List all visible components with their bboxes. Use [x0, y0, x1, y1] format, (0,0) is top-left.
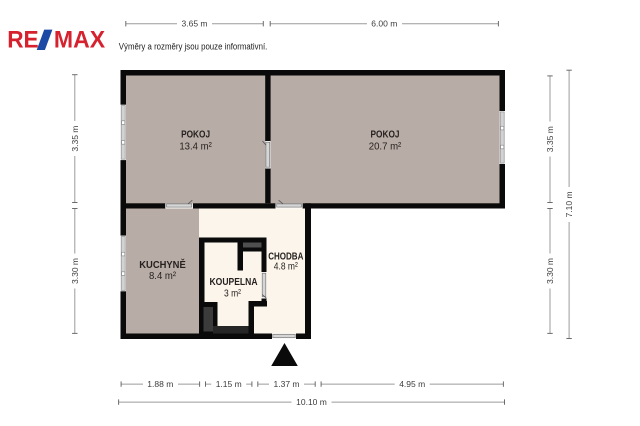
svg-text:POKOJ: POKOJ: [181, 130, 210, 141]
svg-text:1.15 m: 1.15 m: [216, 379, 242, 389]
svg-text:3.30 m: 3.30 m: [70, 258, 80, 284]
svg-text:POKOJ: POKOJ: [371, 130, 400, 141]
svg-text:3.35 m: 3.35 m: [70, 126, 80, 152]
svg-text:6.00 m: 6.00 m: [371, 19, 397, 29]
svg-text:3 m²: 3 m²: [224, 288, 242, 299]
svg-text:1.37 m: 1.37 m: [274, 379, 300, 389]
svg-text:8.4 m²: 8.4 m²: [149, 271, 177, 282]
svg-text:1.88 m: 1.88 m: [147, 379, 173, 389]
svg-text:20.7 m²: 20.7 m²: [369, 142, 402, 153]
svg-text:3.35 m: 3.35 m: [545, 126, 555, 152]
svg-text:KOUPELNA: KOUPELNA: [210, 277, 258, 288]
svg-text:13.4 m²: 13.4 m²: [179, 142, 212, 153]
svg-text:KUCHYNĚ: KUCHYNĚ: [139, 258, 186, 271]
svg-text:3.65 m: 3.65 m: [182, 19, 208, 29]
svg-text:4.95 m: 4.95 m: [399, 379, 425, 389]
svg-text:3.30 m: 3.30 m: [545, 258, 555, 284]
svg-text:RE: RE: [7, 27, 39, 54]
svg-text:MAX: MAX: [54, 27, 105, 54]
svg-text:7.10 m: 7.10 m: [564, 191, 574, 217]
svg-text:Výměry a rozměry jsou pouze in: Výměry a rozměry jsou pouze informativní…: [119, 42, 267, 52]
svg-text:4.8 m²: 4.8 m²: [274, 262, 299, 273]
svg-text:10.10 m: 10.10 m: [296, 397, 327, 407]
